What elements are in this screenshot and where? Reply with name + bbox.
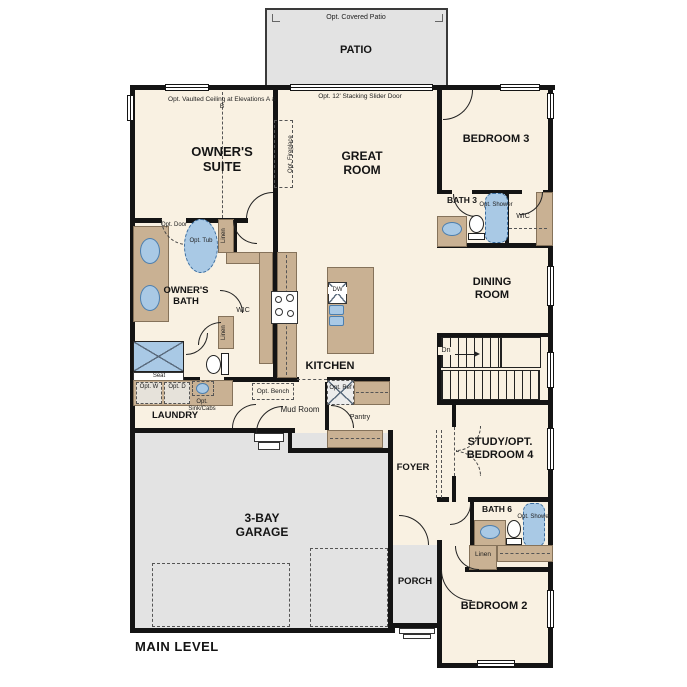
bath3-opt-shower-note: Opt. Shower	[479, 202, 513, 209]
foyer-opening	[441, 430, 442, 498]
pantry-shelf-line	[330, 438, 380, 439]
opt-ref-box	[327, 380, 354, 405]
great-room-label: GREAT ROOM	[332, 150, 392, 177]
bath3-toilet	[469, 215, 484, 233]
kitchen-label: KITCHEN	[300, 360, 360, 373]
opt-ref-label: Opt. Ref	[327, 385, 354, 392]
pantry-shelves	[327, 430, 383, 448]
patio-label: PATIO	[326, 44, 386, 57]
stairs-down-arrow	[455, 354, 475, 355]
bath6-toilet	[507, 520, 521, 538]
ceiling-fan-icon	[435, 14, 443, 22]
floor-plan: Opt. Covered Patio PATIO	[0, 0, 687, 687]
stairs-landing	[501, 337, 541, 368]
owners-shower	[133, 341, 184, 372]
dishwasher-label: DW	[328, 287, 347, 294]
island-sink	[329, 305, 344, 315]
wall	[437, 497, 449, 502]
wic-dashed-line	[509, 228, 547, 229]
burner	[286, 294, 294, 302]
stairs-lower-flight	[441, 370, 540, 400]
opt-dryer-label: Opt. D	[165, 384, 189, 391]
stacking-slider-door	[290, 84, 433, 91]
bath6-opt-shower-note: Opt. Shower	[517, 514, 551, 521]
wall	[468, 497, 553, 502]
window	[547, 352, 554, 388]
laundry-sink	[196, 383, 209, 394]
stairs-down-arrowhead	[474, 351, 480, 357]
linen-label: Linen	[221, 222, 228, 250]
wall	[437, 190, 452, 194]
vanity-sink	[140, 238, 160, 264]
burner	[275, 308, 283, 316]
opt-bench-label: Opt. Bench	[252, 388, 294, 395]
bath3-opt-shower-tub	[485, 193, 508, 243]
owners-suite-label: OWNER'S SUITE	[172, 145, 272, 175]
garage-door-outline	[310, 548, 388, 627]
dining-room-label: DINING ROOM	[462, 276, 522, 301]
wall	[452, 476, 456, 502]
porch-label: PORCH	[390, 577, 440, 588]
window	[547, 428, 554, 470]
opt-washer-label: Opt. W	[137, 384, 161, 391]
covered-patio-note: Opt. Covered Patio	[306, 14, 406, 22]
opt-tub-note: Opt. Tub	[188, 238, 214, 245]
level-title: MAIN LEVEL	[135, 640, 255, 655]
wall	[130, 85, 292, 90]
bedroom3-label: BEDROOM 3	[446, 133, 546, 146]
wall	[130, 628, 395, 633]
garage-step	[254, 433, 284, 442]
bath6-sink	[480, 525, 500, 539]
window	[500, 84, 540, 91]
bedroom2-label: BEDROOM 2	[444, 600, 544, 613]
opt-door-line	[454, 427, 455, 476]
wall	[388, 430, 393, 630]
wall	[437, 85, 442, 192]
bath6-opt-shower-tub	[523, 503, 545, 547]
porch-step	[403, 634, 431, 639]
opt-tub	[184, 219, 218, 273]
cased-opening	[297, 379, 327, 380]
burner	[275, 296, 282, 303]
garage-door-outline	[152, 563, 290, 627]
window	[127, 95, 134, 121]
opt-door-note: Opt. Door	[160, 222, 188, 229]
vaulted-note: Opt. Vaulted Ceiling at Elevations A & B	[167, 96, 277, 111]
bath6-shelf-line	[500, 553, 550, 554]
wall	[130, 433, 135, 633]
slider-note: Opt. 12' Stacking Slider Door	[300, 93, 420, 100]
bath6-toilet-tank	[506, 538, 522, 545]
window	[165, 84, 209, 91]
linen-label: Linen	[221, 319, 228, 347]
owners-toilet-tank	[221, 353, 229, 375]
garage-step	[258, 442, 280, 450]
garage-label: 3-BAY GARAGE	[217, 512, 307, 539]
foyer-opening	[436, 430, 437, 498]
laundry-label: LAUNDRY	[140, 411, 210, 422]
bath6-label: BATH 6	[477, 505, 517, 515]
bath3-sink	[442, 222, 462, 236]
window	[547, 93, 554, 119]
cooktop	[271, 291, 298, 324]
foyer-label: FOYER	[388, 463, 438, 474]
pantry-counter-line	[356, 392, 388, 393]
window	[547, 590, 554, 628]
wall	[130, 218, 162, 223]
window	[477, 660, 515, 667]
island-sink	[329, 316, 344, 326]
pantry-counter	[354, 381, 390, 405]
owners-toilet	[206, 355, 221, 374]
wall	[452, 405, 456, 427]
owners-bath-label: OWNER'S BATH	[156, 286, 216, 308]
wall	[292, 448, 390, 453]
opt-fireplace-note: Opt. Fireplace	[288, 124, 295, 184]
burner	[287, 310, 294, 317]
wall	[288, 428, 292, 453]
seat-label: Seat	[146, 373, 172, 380]
ceiling-fan-icon	[272, 14, 280, 22]
window	[547, 266, 554, 306]
bath3-toilet-tank	[468, 233, 485, 240]
stairs-dn-label: Dn	[438, 347, 454, 355]
